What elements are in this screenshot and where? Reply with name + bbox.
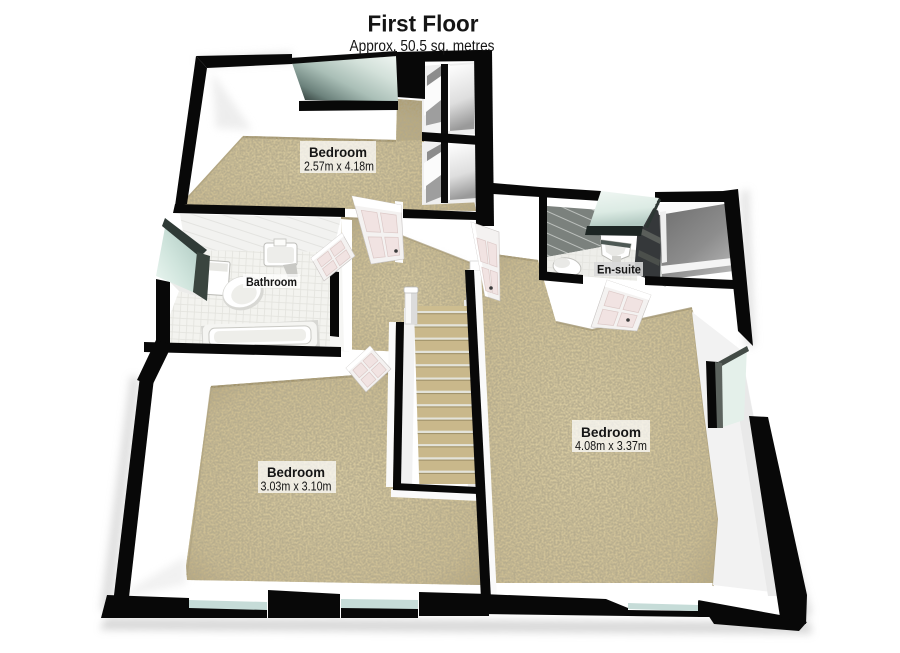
svg-text:En-suite: En-suite (597, 265, 641, 277)
svg-text:Approx. 50.5 sq. metres: Approx. 50.5 sq. metres (350, 38, 495, 55)
svg-text:4.08m x 3.37m: 4.08m x 3.37m (575, 439, 647, 453)
svg-text:Bathroom: Bathroom (246, 277, 297, 289)
svg-text:Bedroom: Bedroom (309, 144, 367, 160)
svg-text:First Floor: First Floor (368, 11, 479, 37)
svg-text:Bedroom: Bedroom (581, 424, 641, 440)
svg-text:3.03m x 3.10m: 3.03m x 3.10m (261, 480, 332, 494)
svg-text:2.57m x 4.18m: 2.57m x 4.18m (304, 160, 374, 174)
svg-text:Bedroom: Bedroom (267, 464, 325, 480)
